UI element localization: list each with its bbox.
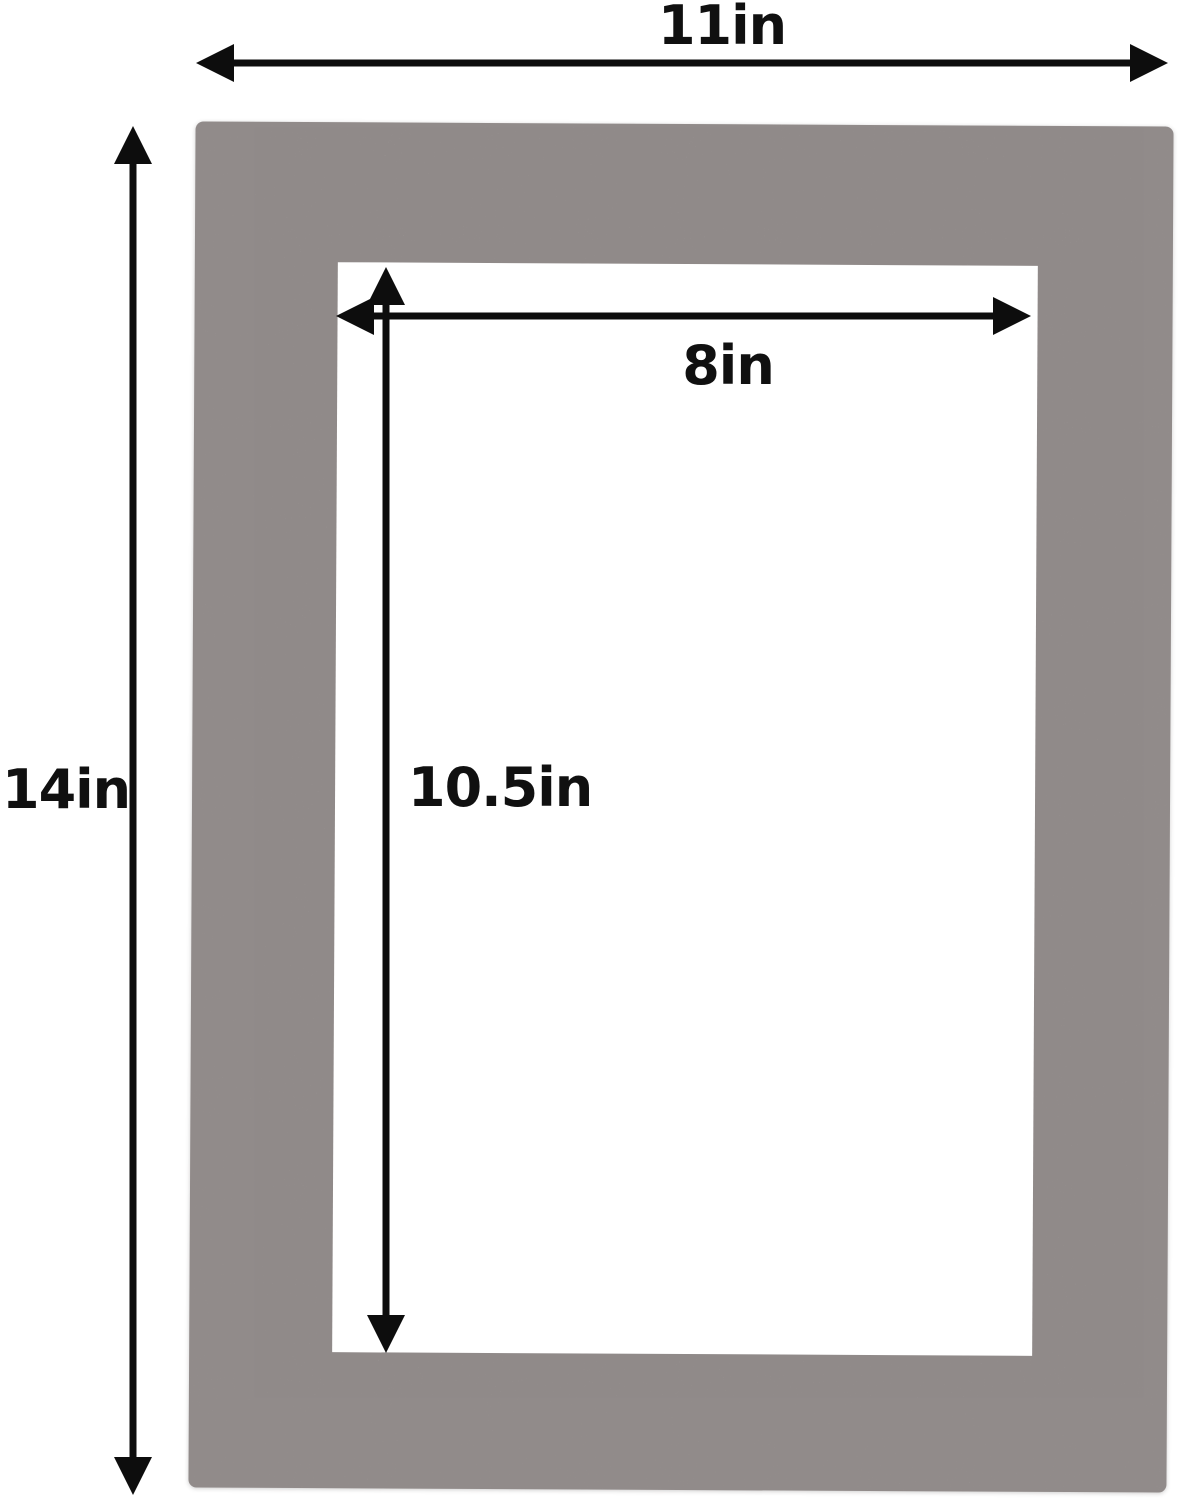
outer-width-arrow-left-icon [196, 44, 234, 82]
outer-height-arrow-bottom-icon [114, 1457, 152, 1495]
opening-width-label: 8in [648, 338, 808, 394]
outer-height-label: 14in [2, 762, 132, 818]
outer-height-arrow-top-icon [114, 126, 152, 164]
diagram-canvas: 11in 14in 8in 10.5in [0, 0, 1182, 1500]
opening-height-label: 10.5in [408, 760, 608, 816]
outer-width-label: 11in [622, 0, 822, 54]
outer-width-arrow-right-icon [1130, 44, 1168, 82]
mat-board [188, 121, 1173, 1492]
